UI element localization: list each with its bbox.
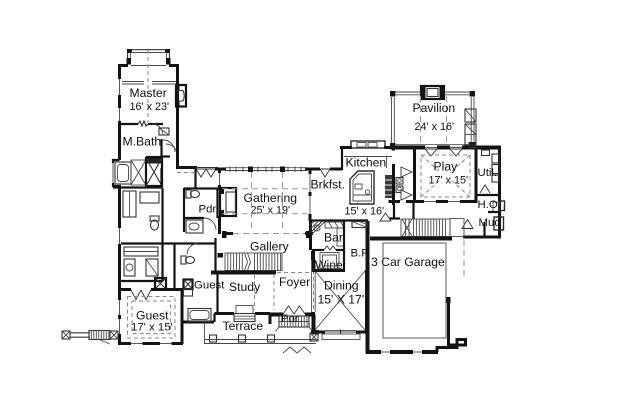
svg-text:Study: Study <box>229 280 261 294</box>
svg-text:15' X 17': 15' X 17' <box>318 293 365 307</box>
svg-text:Pdr.: Pdr. <box>199 204 219 216</box>
svg-text:3 Car Garage: 3 Car Garage <box>371 255 445 269</box>
svg-text:Bar: Bar <box>324 231 343 245</box>
svg-text:H.O.: H.O. <box>478 199 501 211</box>
svg-text:Mud: Mud <box>479 217 501 229</box>
svg-text:Brkfst.: Brkfst. <box>311 178 346 192</box>
svg-text:Dining: Dining <box>324 279 359 293</box>
svg-text:24' x 16': 24' x 16' <box>415 121 455 133</box>
svg-text:17' x 15': 17' x 15' <box>131 322 173 334</box>
svg-text:Play: Play <box>434 160 459 174</box>
svg-text:15' x 16': 15' x 16' <box>345 206 385 218</box>
svg-text:Guest: Guest <box>194 280 225 292</box>
svg-text:Terrace: Terrace <box>223 319 264 333</box>
svg-text:Master: Master <box>130 86 167 100</box>
svg-text:B.P.: B.P. <box>351 248 371 260</box>
svg-text:M.Bath: M.Bath <box>123 135 162 149</box>
svg-text:Guest: Guest <box>136 309 169 323</box>
svg-text:25' x 19': 25' x 19' <box>251 205 291 217</box>
svg-text:16' x 23': 16' x 23' <box>130 101 170 113</box>
svg-text:Kitchen: Kitchen <box>346 156 387 170</box>
svg-text:Foyer: Foyer <box>279 275 310 289</box>
svg-text:Por: Por <box>281 313 299 325</box>
svg-text:Gallery: Gallery <box>250 240 290 254</box>
svg-text:17' x 15': 17' x 15' <box>429 175 469 187</box>
svg-text:Pavilion: Pavilion <box>413 101 456 115</box>
svg-text:Util.: Util. <box>478 167 498 179</box>
